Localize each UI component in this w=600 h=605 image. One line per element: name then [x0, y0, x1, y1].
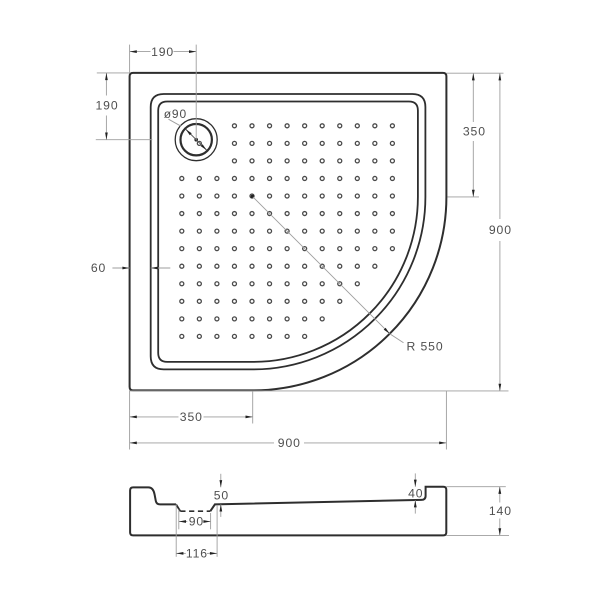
svg-text:116: 116 [186, 547, 208, 561]
svg-text:190: 190 [151, 45, 174, 59]
svg-text:190: 190 [95, 99, 118, 113]
svg-text:ø90: ø90 [164, 107, 187, 121]
svg-text:140: 140 [489, 504, 512, 518]
svg-text:90: 90 [189, 515, 204, 529]
svg-text:900: 900 [278, 436, 301, 450]
svg-text:40: 40 [408, 487, 423, 501]
svg-text:R 550: R 550 [407, 340, 444, 354]
svg-text:60: 60 [91, 261, 106, 275]
svg-text:350: 350 [180, 410, 203, 424]
svg-text:350: 350 [463, 125, 486, 139]
svg-text:900: 900 [489, 223, 512, 237]
svg-text:50: 50 [214, 489, 229, 503]
